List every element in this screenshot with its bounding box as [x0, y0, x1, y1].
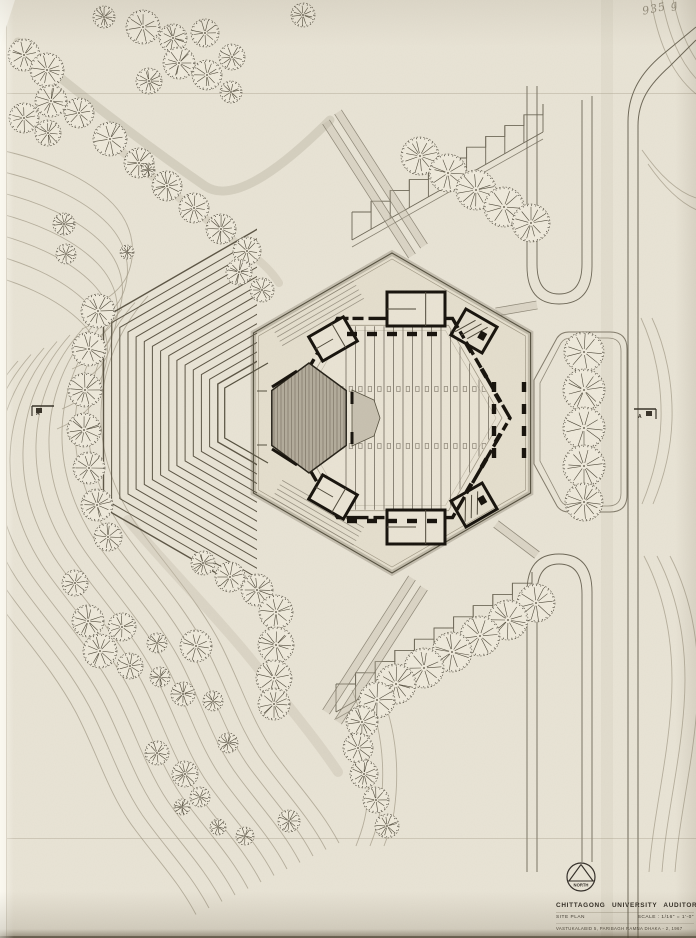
paper-corner-fold: [0, 0, 15, 46]
architect-credit-line: VASTUKALABID 5, PARIBAGH RAMNA DHAKA - 2…: [556, 923, 694, 931]
section-cut-icon: [632, 402, 660, 424]
section-cut-icon: [28, 399, 56, 421]
site-plan-drawing: [0, 0, 696, 938]
project-title: CHITTAGONG UNIVERSITY AUDITORIUM: [556, 902, 694, 909]
drawing-name-row: SITE PLAN SCALE : 1/16" = 1'-0": [556, 912, 694, 920]
paper-crease: [0, 838, 696, 839]
paper-edge: [0, 0, 7, 938]
scale-label: SCALE : 1/16" = 1'-0": [638, 915, 694, 920]
section-label: A: [36, 411, 40, 417]
paper-grain: [0, 0, 696, 938]
north-label: NORTH: [574, 883, 589, 888]
north-arrow-icon: NORTH: [564, 860, 598, 894]
section-marker-a-left: A: [28, 399, 56, 426]
title-block: NORTH CHITTAGONG UNIVERSITY AUDITORIUM S…: [556, 860, 694, 931]
scanned-site-plan-sheet: 935 g A A NORTH CHITTAGONG UNIVERSITY AU…: [0, 0, 696, 938]
section-label: A: [638, 414, 642, 420]
section-marker-a-right: A: [632, 402, 660, 429]
drawing-name: SITE PLAN: [556, 915, 585, 920]
paper-crease: [0, 93, 696, 94]
